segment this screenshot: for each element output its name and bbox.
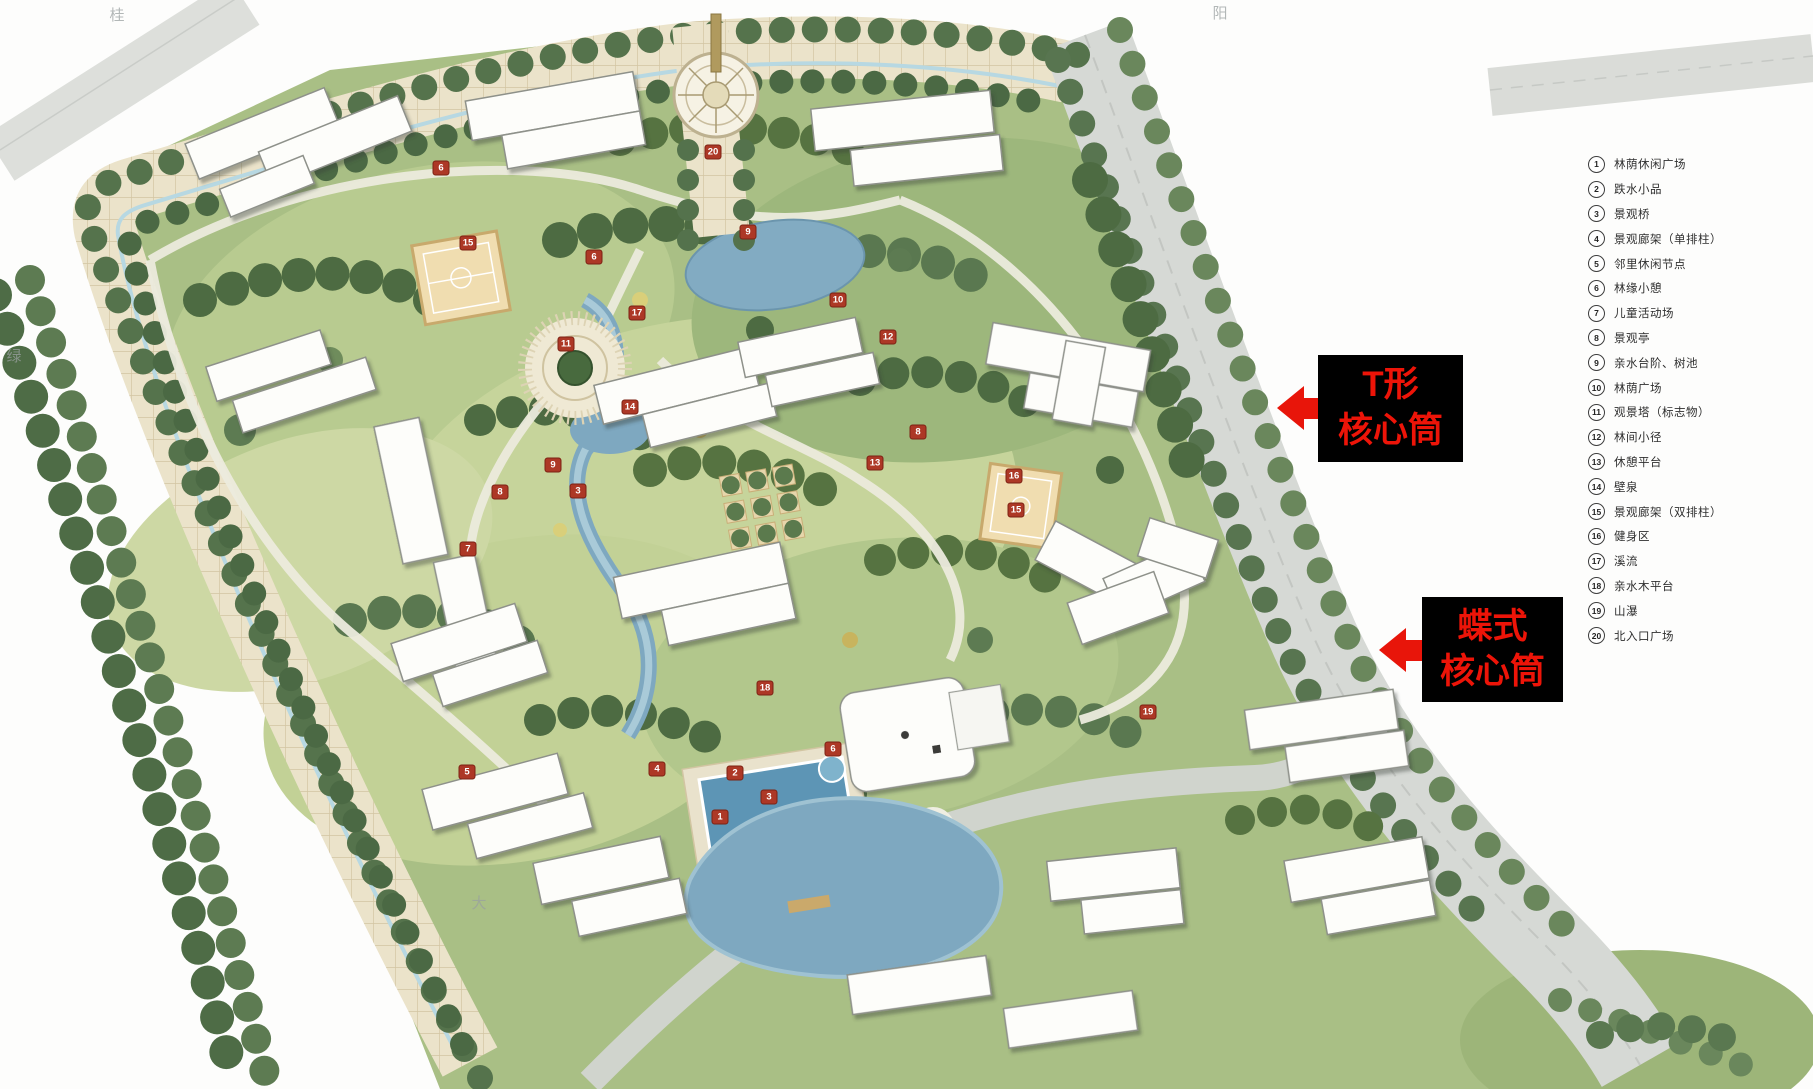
plan-marker: 1	[712, 810, 729, 825]
legend-label: 健身区	[1614, 528, 1650, 544]
legend-label: 林荫休闲广场	[1614, 156, 1686, 172]
legend-row: 3 景观桥	[1588, 202, 1813, 227]
legend-number-badge: 15	[1588, 503, 1605, 520]
street-name-label: 桂	[109, 4, 124, 25]
street-name-label: 大	[471, 892, 486, 913]
legend-row: 18 亲水木平台	[1588, 574, 1813, 599]
plan-marker: 18	[757, 681, 774, 696]
legend-number-badge: 8	[1588, 329, 1605, 346]
butterfly-core-arrow	[1379, 628, 1424, 672]
legend-row: 15 景观廊架（双排柱）	[1588, 499, 1813, 524]
legend-row: 9 亲水台阶、树池	[1588, 350, 1813, 375]
plan-marker: 3	[570, 484, 587, 499]
callout-butterfly-core-line1: 蝶式	[1422, 604, 1563, 649]
plan-marker: 4	[649, 762, 666, 777]
legend-label: 休憩平台	[1614, 454, 1662, 470]
legend-label: 邻里休闲节点	[1614, 256, 1686, 272]
plan-marker: 8	[492, 485, 509, 500]
legend: 1 林荫休闲广场 2 跌水小品 3 景观桥 4 景观廊架（单排柱） 5 邻里休闲…	[1588, 152, 1813, 648]
legend-label: 林间小径	[1614, 429, 1662, 445]
master-plan-drawing	[0, 0, 1813, 1089]
legend-row: 20 北入口广场	[1588, 623, 1813, 648]
plan-marker: 17	[629, 306, 646, 321]
legend-number-badge: 3	[1588, 205, 1605, 222]
legend-row: 6 林缘小憩	[1588, 276, 1813, 301]
legend-row: 4 景观廊架（单排柱）	[1588, 226, 1813, 251]
legend-label: 景观桥	[1614, 206, 1650, 222]
legend-number-badge: 18	[1588, 577, 1605, 594]
legend-number-badge: 1	[1588, 156, 1605, 173]
legend-label: 林荫广场	[1614, 380, 1662, 396]
legend-row: 11 观景塔（标志物）	[1588, 400, 1813, 425]
callout-t-core-line2: 核心筒	[1318, 408, 1463, 454]
plan-marker: 11	[558, 337, 575, 352]
legend-number-badge: 2	[1588, 181, 1605, 198]
plan-marker: 20	[705, 145, 722, 160]
legend-label: 景观廊架（双排柱）	[1614, 504, 1722, 520]
plan-marker: 13	[867, 456, 884, 471]
tree-parterre	[719, 464, 805, 550]
legend-number-badge: 4	[1588, 230, 1605, 247]
plan-marker: 9	[545, 458, 562, 473]
legend-label: 北入口广场	[1614, 628, 1674, 644]
legend-row: 8 景观亭	[1588, 326, 1813, 351]
street-name-label: 阳	[1212, 2, 1227, 23]
callout-butterfly-core: 蝶式 核心筒	[1422, 597, 1563, 702]
legend-label: 亲水台阶、树池	[1614, 355, 1698, 371]
site-plan-image: 桂 阳 绿 大 6 15 9 6 11 17 14 10 12 8 13 16 …	[0, 0, 1813, 1089]
callout-butterfly-core-line2: 核心筒	[1422, 649, 1563, 694]
callout-t-core-line1: T形	[1318, 362, 1463, 408]
legend-row: 1 林荫休闲广场	[1588, 152, 1813, 177]
plan-marker: 12	[880, 330, 897, 345]
plan-marker: 15	[460, 236, 477, 251]
legend-row: 7 儿童活动场	[1588, 301, 1813, 326]
legend-label: 儿童活动场	[1614, 305, 1674, 321]
plan-marker: 7	[460, 542, 477, 557]
plan-marker: 9	[740, 225, 757, 240]
legend-row: 2 跌水小品	[1588, 177, 1813, 202]
legend-label: 景观廊架（单排柱）	[1614, 231, 1722, 247]
legend-label: 观景塔（标志物）	[1614, 404, 1710, 420]
legend-number-badge: 17	[1588, 553, 1605, 570]
legend-number-badge: 16	[1588, 528, 1605, 545]
legend-row: 14 壁泉	[1588, 474, 1813, 499]
plan-marker: 3	[761, 790, 778, 805]
plan-marker: 2	[727, 766, 744, 781]
plan-marker: 14	[622, 400, 639, 415]
legend-row: 10 林荫广场	[1588, 375, 1813, 400]
legend-number-badge: 6	[1588, 280, 1605, 297]
plan-marker: 8	[910, 425, 927, 440]
legend-label: 林缘小憩	[1614, 280, 1662, 296]
legend-number-badge: 12	[1588, 429, 1605, 446]
t-core-arrow	[1277, 386, 1322, 430]
plan-marker: 15	[1008, 503, 1025, 518]
street-name-label: 绿	[6, 345, 21, 366]
legend-label: 壁泉	[1614, 479, 1638, 495]
plan-marker: 16	[1006, 469, 1023, 484]
plan-marker: 6	[825, 742, 842, 757]
legend-row: 5 邻里休闲节点	[1588, 251, 1813, 276]
legend-label: 溪流	[1614, 553, 1638, 569]
legend-row: 17 溪流	[1588, 549, 1813, 574]
landmark-tower	[711, 14, 721, 72]
plan-marker: 6	[433, 161, 450, 176]
legend-label: 跌水小品	[1614, 181, 1662, 197]
legend-number-badge: 11	[1588, 404, 1605, 421]
plan-marker: 10	[830, 293, 847, 308]
legend-label: 景观亭	[1614, 330, 1650, 346]
callout-t-core: T形 核心筒	[1318, 355, 1463, 462]
legend-number-badge: 14	[1588, 478, 1605, 495]
legend-row: 13 休憩平台	[1588, 450, 1813, 475]
plan-marker: 19	[1140, 705, 1157, 720]
plan-marker: 6	[586, 250, 603, 265]
legend-number-badge: 10	[1588, 379, 1605, 396]
legend-row: 16 健身区	[1588, 524, 1813, 549]
legend-number-badge: 7	[1588, 305, 1605, 322]
legend-number-badge: 19	[1588, 602, 1605, 619]
legend-number-badge: 20	[1588, 627, 1605, 644]
legend-number-badge: 9	[1588, 354, 1605, 371]
legend-row: 19 山瀑	[1588, 598, 1813, 623]
plan-marker: 5	[459, 765, 476, 780]
legend-number-badge: 13	[1588, 453, 1605, 470]
legend-label: 山瀑	[1614, 603, 1638, 619]
legend-row: 12 林间小径	[1588, 425, 1813, 450]
legend-label: 亲水木平台	[1614, 578, 1674, 594]
legend-number-badge: 5	[1588, 255, 1605, 272]
